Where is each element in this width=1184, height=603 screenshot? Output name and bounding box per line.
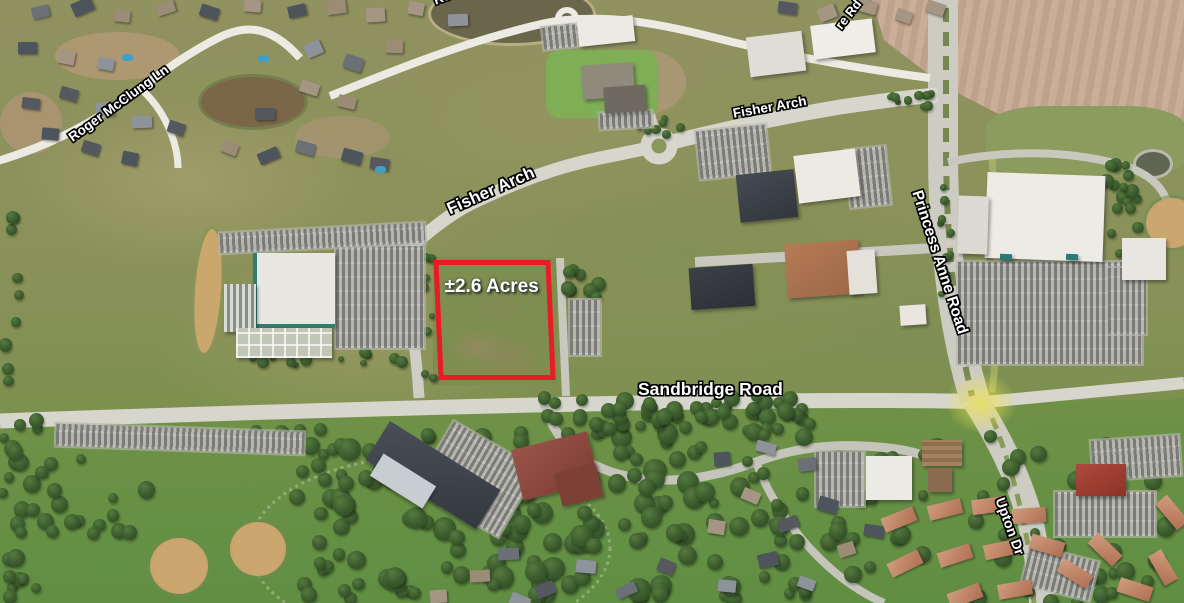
parcel-acreage-label: ±2.6 Acres	[445, 276, 539, 298]
tree	[603, 422, 615, 434]
tree	[844, 566, 861, 583]
building	[866, 456, 912, 500]
tree	[347, 551, 366, 570]
house	[57, 49, 76, 66]
tree	[4, 472, 14, 482]
building	[1122, 238, 1166, 280]
tree	[613, 445, 629, 461]
building	[746, 31, 806, 78]
house	[220, 139, 239, 156]
house	[385, 40, 403, 54]
parking-lot	[336, 246, 424, 348]
tree	[122, 525, 136, 539]
building	[236, 328, 332, 358]
house	[256, 146, 280, 165]
tree	[940, 184, 947, 191]
tree	[1123, 170, 1134, 181]
tree	[359, 347, 370, 358]
tree	[108, 493, 118, 503]
tree	[312, 535, 327, 550]
tree	[338, 584, 351, 597]
townhome-row	[927, 498, 964, 521]
house	[132, 116, 153, 129]
house	[244, 0, 262, 12]
house	[167, 120, 187, 136]
tree	[774, 534, 787, 547]
house	[366, 7, 385, 22]
tree	[914, 91, 923, 100]
tree	[549, 412, 563, 426]
tree	[947, 251, 954, 258]
tree	[29, 413, 44, 428]
tree	[352, 578, 365, 591]
tree	[968, 513, 983, 528]
house	[295, 140, 317, 156]
house	[97, 57, 115, 72]
tree	[666, 524, 684, 542]
house	[70, 0, 95, 18]
house	[303, 39, 324, 59]
house	[121, 151, 140, 167]
tree	[789, 534, 805, 550]
house	[575, 559, 596, 574]
house	[894, 8, 913, 25]
tree	[311, 458, 326, 473]
house	[113, 9, 130, 23]
tree	[6, 224, 17, 235]
building	[928, 468, 952, 492]
tree	[318, 473, 332, 487]
tree	[314, 423, 328, 437]
tree	[679, 421, 692, 434]
tree	[627, 468, 642, 483]
tree	[1125, 203, 1136, 214]
house	[925, 0, 947, 17]
tree	[338, 438, 361, 461]
tree	[589, 417, 603, 431]
house	[337, 94, 358, 110]
tree	[15, 527, 27, 539]
tree	[940, 196, 948, 204]
tree	[26, 503, 40, 517]
tree	[1107, 229, 1116, 238]
tree	[747, 402, 760, 415]
tree	[543, 533, 562, 552]
tree	[46, 525, 59, 538]
house	[863, 524, 885, 539]
tree	[695, 441, 707, 453]
building	[603, 85, 647, 114]
house	[299, 79, 321, 96]
house	[255, 108, 275, 120]
tree	[938, 215, 947, 224]
tree	[14, 290, 24, 300]
tree	[11, 317, 20, 326]
tree	[513, 515, 531, 533]
parking-lot	[56, 424, 305, 455]
tree	[3, 376, 14, 387]
house	[199, 3, 221, 20]
tree	[759, 429, 771, 441]
tree	[586, 538, 602, 554]
tree	[333, 495, 354, 516]
townhome-row	[886, 549, 923, 577]
tree	[796, 487, 809, 500]
tree	[577, 506, 592, 521]
baseball-diamond	[150, 538, 208, 594]
building	[1066, 254, 1078, 260]
tree	[449, 530, 464, 545]
house	[717, 579, 736, 593]
tree	[314, 557, 326, 569]
building	[922, 440, 962, 466]
tree	[333, 519, 349, 535]
house	[498, 547, 519, 560]
tree	[1132, 222, 1144, 234]
swimming-pool	[375, 166, 386, 173]
house	[342, 53, 365, 72]
tree	[31, 583, 41, 593]
house	[656, 557, 676, 575]
tree	[608, 474, 627, 493]
tree	[717, 406, 730, 419]
tree	[423, 327, 432, 336]
tree	[695, 411, 707, 423]
tree	[7, 549, 25, 567]
tree	[76, 454, 86, 464]
tree	[257, 357, 269, 369]
tree	[289, 489, 305, 505]
building	[985, 172, 1106, 262]
tree	[441, 561, 454, 574]
swimming-pool	[122, 54, 133, 61]
tree	[613, 402, 625, 414]
house	[31, 4, 51, 20]
tree	[453, 566, 470, 583]
tree	[1112, 203, 1123, 214]
swimming-pool	[258, 55, 269, 62]
parking-lot	[600, 111, 653, 130]
tree	[563, 266, 575, 278]
tree	[429, 313, 435, 319]
tree	[947, 229, 955, 237]
building	[577, 15, 635, 47]
tree	[51, 496, 68, 513]
tree	[638, 479, 655, 496]
tree	[107, 509, 119, 521]
building	[846, 249, 877, 295]
tree	[1043, 594, 1059, 603]
tree	[629, 533, 645, 549]
building	[793, 148, 860, 203]
tree	[777, 403, 794, 420]
tree	[864, 561, 876, 573]
house	[42, 127, 60, 140]
tree	[405, 507, 427, 529]
tree	[652, 586, 668, 602]
tree	[301, 587, 316, 602]
tree	[3, 590, 17, 603]
tree	[409, 587, 421, 599]
tree	[1030, 446, 1046, 462]
tree	[333, 548, 346, 561]
tree	[676, 123, 685, 132]
tree	[795, 428, 813, 446]
tree	[759, 571, 770, 582]
tree	[17, 573, 29, 585]
house	[155, 0, 177, 17]
house	[325, 0, 347, 15]
tree	[64, 514, 80, 530]
house	[740, 487, 761, 505]
house	[430, 589, 448, 603]
tree	[35, 466, 49, 480]
baseball-diamond	[230, 522, 286, 576]
building	[689, 264, 756, 310]
tree	[138, 481, 156, 499]
house	[755, 440, 777, 456]
tree	[651, 125, 660, 134]
tree	[1121, 161, 1130, 170]
tree	[2, 363, 14, 375]
parcel-outline: ±2.6 Acres	[433, 260, 555, 380]
tree	[1002, 459, 1020, 477]
intersection-glare	[945, 372, 1017, 434]
tree	[12, 273, 23, 284]
house	[407, 1, 425, 17]
tree	[757, 467, 770, 480]
tree	[549, 397, 561, 409]
building	[1076, 464, 1126, 496]
house	[714, 451, 731, 466]
tree	[286, 357, 296, 367]
tree	[695, 482, 715, 502]
tree	[707, 554, 723, 570]
tree	[14, 419, 26, 431]
building	[899, 304, 926, 326]
building	[1000, 254, 1012, 260]
tree	[678, 546, 697, 565]
tree	[1105, 160, 1116, 171]
tree	[729, 517, 748, 536]
tree	[635, 421, 646, 432]
house	[287, 3, 308, 18]
tree	[923, 101, 933, 111]
house	[81, 140, 101, 157]
house	[470, 569, 491, 582]
tree	[421, 370, 429, 378]
tree	[429, 374, 437, 382]
tree	[576, 394, 588, 406]
house	[59, 86, 79, 103]
house	[797, 457, 817, 472]
building	[736, 169, 799, 223]
building	[224, 284, 256, 332]
tree	[296, 465, 310, 479]
tree	[360, 360, 366, 366]
road-label-sandbridge: Sandbridge Road	[638, 379, 783, 400]
house	[18, 42, 38, 55]
tree	[641, 507, 662, 528]
tree	[0, 338, 12, 352]
tree	[561, 281, 575, 295]
house	[707, 519, 725, 535]
tree	[656, 409, 672, 425]
parking-lot	[1055, 492, 1155, 536]
tree	[662, 130, 671, 139]
tree	[658, 495, 674, 511]
tree	[742, 456, 753, 467]
tree	[421, 428, 435, 442]
building	[957, 195, 989, 254]
tree	[997, 477, 1011, 491]
tree	[396, 356, 408, 368]
aerial-map: ±2.6 Acres Robert Roger McClung Ln Fishe…	[0, 0, 1184, 603]
tree	[8, 444, 24, 460]
tree	[302, 437, 320, 455]
townhome-row	[937, 543, 974, 568]
parking-lot	[570, 300, 600, 355]
tree	[314, 507, 327, 520]
tree	[904, 96, 912, 104]
tree	[669, 451, 686, 468]
house	[448, 14, 469, 26]
tree	[338, 356, 344, 362]
tree	[0, 488, 8, 499]
tree	[47, 483, 62, 498]
tree	[338, 476, 353, 491]
tree	[87, 527, 100, 540]
house	[777, 1, 797, 16]
house	[341, 148, 364, 166]
tree	[772, 423, 783, 434]
tree	[618, 518, 631, 531]
tree	[751, 509, 769, 527]
parking-lot	[696, 124, 771, 179]
house	[21, 97, 41, 110]
tree	[918, 490, 929, 501]
tree	[525, 561, 547, 583]
tree	[573, 413, 586, 426]
tree	[630, 453, 643, 466]
parking-lot	[542, 24, 578, 49]
building	[253, 253, 335, 327]
